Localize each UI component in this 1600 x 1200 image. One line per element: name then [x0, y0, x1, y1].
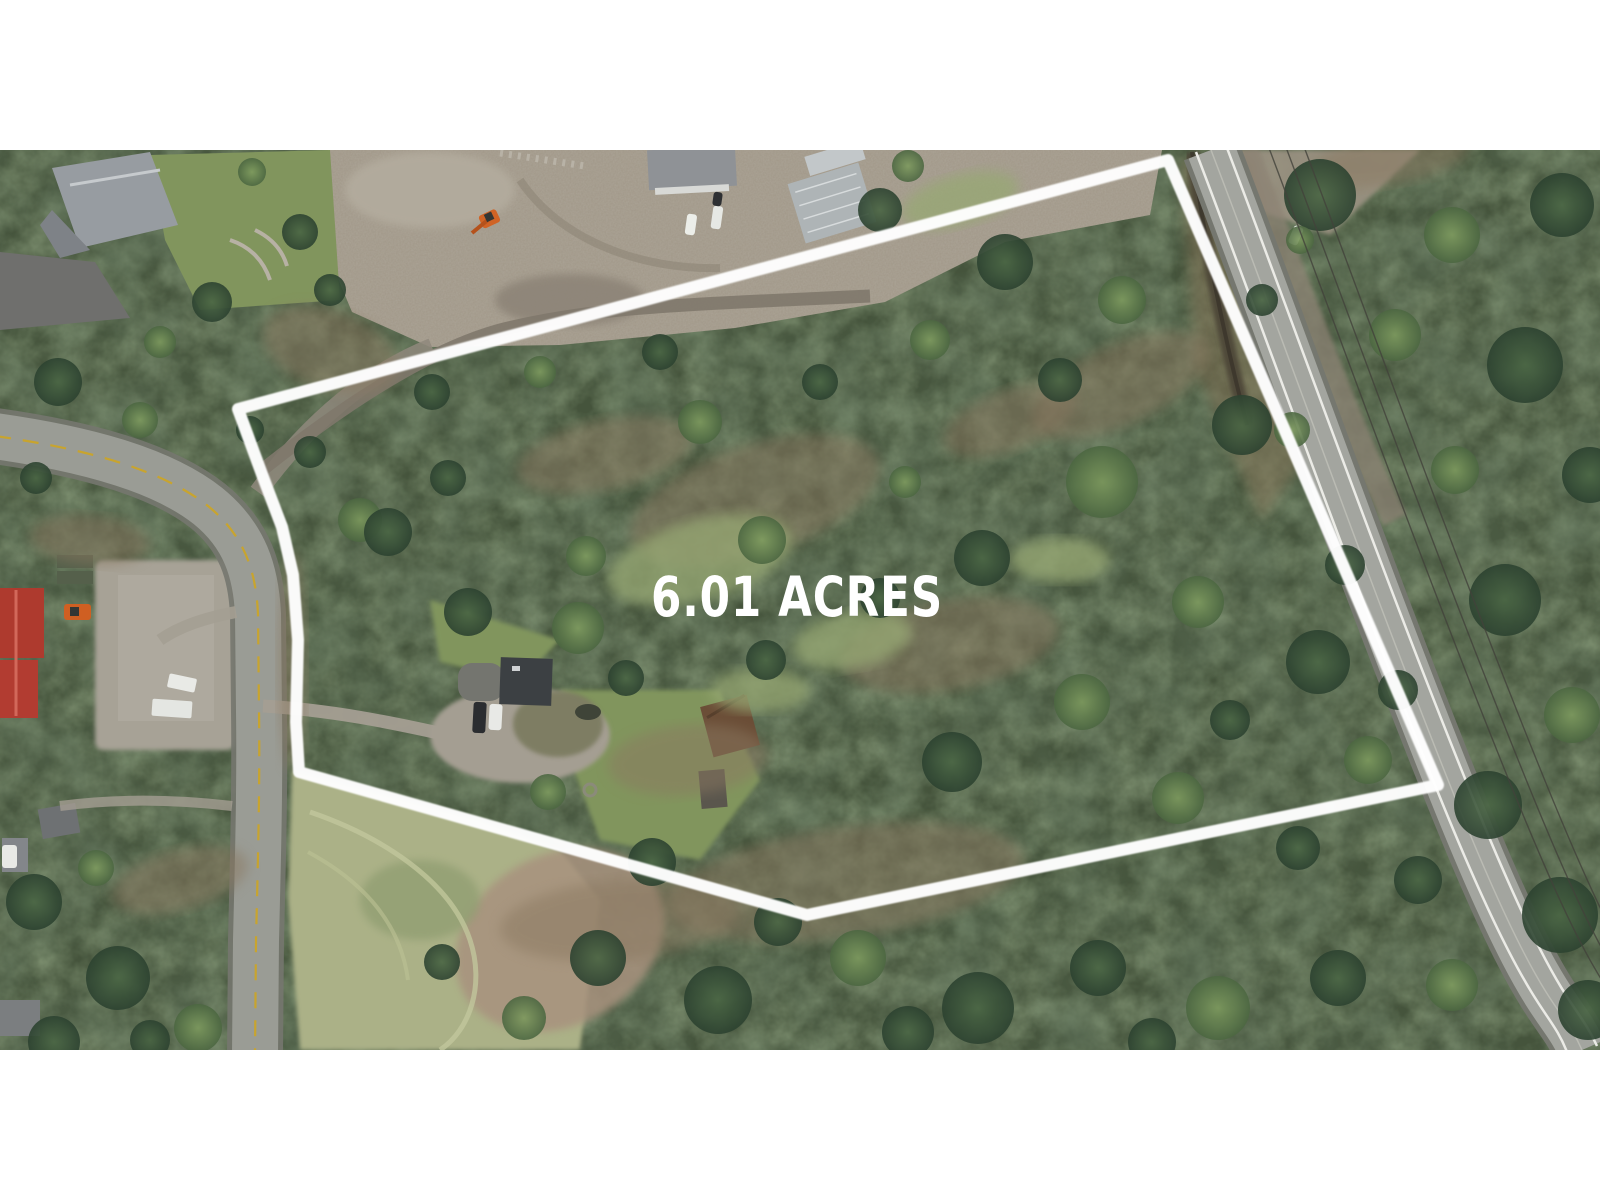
tree-canopy — [802, 364, 838, 400]
tree-canopy — [1522, 877, 1598, 953]
tree-canopy — [1098, 276, 1146, 324]
tree-canopy — [86, 946, 150, 1010]
tree-canopy — [1038, 358, 1082, 402]
pond — [575, 704, 601, 720]
tree-canopy — [1544, 687, 1600, 743]
tree-canopy — [922, 732, 982, 792]
tree-canopy — [530, 774, 566, 810]
tree-canopy — [1128, 1018, 1176, 1066]
tree-canopy — [1369, 309, 1421, 361]
tree-canopy — [282, 214, 318, 250]
tree-canopy — [444, 588, 492, 636]
tree-canopy — [858, 188, 902, 232]
tree-canopy — [1454, 771, 1522, 839]
tree-canopy — [122, 402, 158, 438]
tree-canopy — [1066, 446, 1138, 518]
tree-canopy — [1426, 959, 1478, 1011]
tree-canopy — [1210, 700, 1250, 740]
tree-canopy — [314, 274, 346, 306]
tree-canopy — [1530, 173, 1594, 237]
tree-canopy — [566, 536, 606, 576]
tree-canopy — [882, 1006, 934, 1058]
tree-canopy — [892, 150, 924, 182]
tree-canopy — [552, 602, 604, 654]
house-roof — [499, 657, 553, 706]
tree-canopy — [20, 462, 52, 494]
tree-canopy — [130, 1020, 170, 1060]
house-roof — [458, 663, 504, 701]
tree-canopy — [78, 850, 114, 886]
tree-canopy — [1276, 826, 1320, 870]
tree-canopy — [1172, 576, 1224, 628]
grass-glade — [1010, 538, 1110, 582]
tree-canopy — [889, 466, 921, 498]
tree-canopy — [6, 874, 62, 930]
tree-canopy — [910, 320, 950, 360]
tree-canopy — [1186, 976, 1250, 1040]
tree-canopy — [1310, 950, 1366, 1006]
tree-canopy — [738, 516, 786, 564]
tree-canopy — [642, 334, 678, 370]
tree-canopy — [414, 374, 450, 410]
tree-canopy — [430, 460, 466, 496]
white-trailer — [151, 699, 192, 719]
tree-canopy — [1070, 940, 1126, 996]
tree-canopy — [34, 358, 82, 406]
tree-canopy — [1469, 564, 1541, 636]
tree-canopy — [1246, 284, 1278, 316]
pickup-truck — [472, 702, 487, 734]
tree-canopy — [364, 508, 412, 556]
tree-canopy — [1487, 327, 1563, 403]
building-roof — [647, 146, 737, 191]
tree-canopy — [1286, 630, 1350, 694]
tree-canopy — [746, 640, 786, 680]
tree-canopy — [678, 400, 722, 444]
tree-canopy — [174, 1004, 222, 1052]
tree-canopy — [524, 356, 556, 388]
acreage-label: 6.01 ACRES — [651, 565, 943, 629]
tree-canopy — [424, 944, 460, 980]
tree-canopy — [608, 660, 644, 696]
tree-canopy — [954, 530, 1010, 586]
tree-canopy — [192, 282, 232, 322]
tree-canopy — [1394, 856, 1442, 904]
tree-canopy — [1054, 674, 1110, 730]
tree-canopy — [977, 234, 1033, 290]
tree-canopy — [830, 930, 886, 986]
tree-canopy — [1344, 736, 1392, 784]
tree-canopy — [502, 996, 546, 1040]
white-car — [488, 704, 502, 731]
tree-canopy — [684, 966, 752, 1034]
aerial-photo: 6.01 ACRES — [0, 0, 1600, 1200]
red-barn-roof — [0, 588, 44, 658]
tree-canopy — [1424, 207, 1480, 263]
tree-canopy — [942, 972, 1014, 1044]
tree-canopy — [1212, 395, 1272, 455]
red-house-roof — [0, 660, 38, 718]
tree-canopy — [1431, 446, 1479, 494]
tree-canopy — [570, 930, 626, 986]
tree-canopy — [28, 1016, 80, 1068]
parked-car — [2, 845, 17, 868]
tree-canopy — [294, 436, 326, 468]
tree-canopy — [144, 326, 176, 358]
listing-image-canvas: 6.01 ACRES — [0, 0, 1600, 1200]
tree-canopy — [238, 158, 266, 186]
tree-canopy — [1152, 772, 1204, 824]
